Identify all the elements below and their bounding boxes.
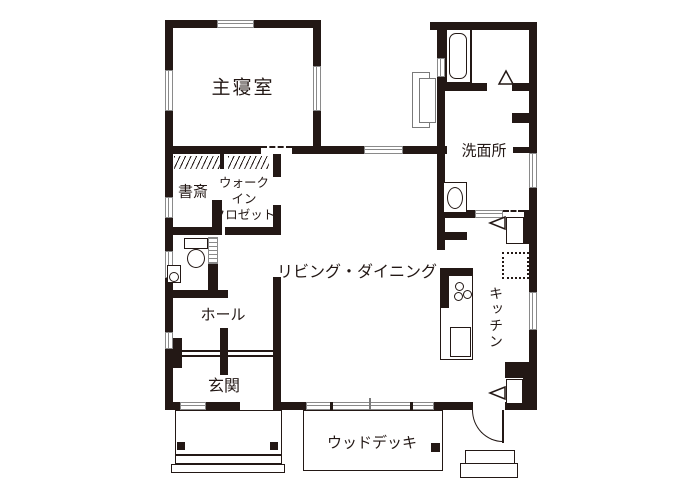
kitchen-cabinet-door-triangle-icon xyxy=(489,386,506,400)
washbasin-bowl xyxy=(447,187,463,209)
label-kitchen: キッチン xyxy=(485,286,505,350)
wall-kitchen-entry-stub xyxy=(437,232,467,240)
opening-back-door xyxy=(473,402,505,410)
floor-plan: 主寝室 書斎 ウォーク イン クロゼット 洗面所 リビング・ダイニング キッチン… xyxy=(0,0,700,500)
window-bathroom-slit xyxy=(437,58,445,77)
label-entrance: 玄関 xyxy=(208,372,240,396)
hanger-rod-icon xyxy=(174,156,220,169)
wall-wic-east-upper xyxy=(273,154,281,177)
bathroom-door-triangle-icon xyxy=(498,70,514,85)
kitchen-cabinet xyxy=(506,379,523,404)
shoe-cabinet xyxy=(172,338,182,368)
window-entrance-side xyxy=(180,402,206,410)
washroom-cabinet-side xyxy=(524,217,529,244)
wall-kitchen-corner-right xyxy=(523,378,537,404)
porch-post xyxy=(177,442,185,450)
window-kitchen-right xyxy=(529,292,537,330)
entrance-step-line xyxy=(173,350,273,352)
label-living-dining: リビング・ダイニング xyxy=(277,258,437,282)
toilet-tank-icon xyxy=(184,238,208,249)
back-door-arc xyxy=(472,410,503,442)
label-wood-deck: ウッドデッキ xyxy=(327,432,417,453)
toilet-sliding-door xyxy=(208,237,218,264)
deck-post xyxy=(431,443,440,452)
wall-living-west xyxy=(273,277,281,410)
wall-kitchen-corner-block xyxy=(505,362,537,378)
window-bedroom-left xyxy=(165,70,173,111)
hanger-rod-support xyxy=(220,152,224,169)
window-washroom-right xyxy=(529,153,537,188)
hanger-rod-icon xyxy=(228,156,269,169)
refrigerator-space xyxy=(502,252,529,279)
wall-bath-divider-left xyxy=(445,83,487,91)
back-door-leaf xyxy=(502,410,504,443)
toilet-bowl-icon xyxy=(187,249,205,268)
window-corridor-south xyxy=(364,146,403,154)
back-door-step xyxy=(465,450,515,464)
label-washroom: 洗面所 xyxy=(461,140,506,161)
porch-step xyxy=(175,455,282,464)
opening-bedroom-sliding-door xyxy=(261,146,292,154)
entrance-step-line xyxy=(173,355,273,357)
window-bedroom-right xyxy=(313,66,321,111)
porch-post xyxy=(270,442,278,450)
window-mullion-right xyxy=(410,402,413,410)
label-bedroom: 主寝室 xyxy=(211,73,274,100)
back-door-step xyxy=(460,463,518,478)
stove-burner-icon xyxy=(463,290,472,299)
wall-wic-bottom xyxy=(225,227,281,235)
toilet-hand-sink-bowl xyxy=(169,272,179,282)
kitchen-counter-side-edge xyxy=(440,268,449,308)
window-study-left xyxy=(165,197,173,218)
window-bedroom-top xyxy=(217,20,254,28)
washroom-cabinet xyxy=(506,217,524,244)
wall-bath-divider-right xyxy=(512,83,529,91)
bathtub-inner xyxy=(449,33,467,79)
washroom-cabinet-door-triangle-icon xyxy=(489,216,506,230)
wall-toilet-top xyxy=(165,227,222,235)
wall-washroom-nook-lower xyxy=(513,147,530,153)
window-mullion-left xyxy=(330,402,333,410)
stove-burner-icon xyxy=(455,282,464,291)
wall-washroom-nook-upper xyxy=(512,113,530,123)
stove-burner-icon xyxy=(454,292,463,301)
water-heater-unit-inner xyxy=(419,78,436,123)
entrance-porch xyxy=(175,410,282,455)
wall-mid-horizontal xyxy=(165,146,447,154)
kitchen-sink-icon xyxy=(450,327,471,357)
porch-step xyxy=(171,464,285,473)
opening-entrance-door xyxy=(240,402,273,410)
label-study: 書斎 xyxy=(178,181,208,202)
label-walk-in-closet: ウォーク イン クロゼット xyxy=(213,175,276,223)
window-hall-left xyxy=(165,332,173,349)
wall-toilet-bottom xyxy=(165,290,228,298)
label-hall: ホール xyxy=(200,304,245,325)
wall-sanitary-left xyxy=(437,22,445,250)
